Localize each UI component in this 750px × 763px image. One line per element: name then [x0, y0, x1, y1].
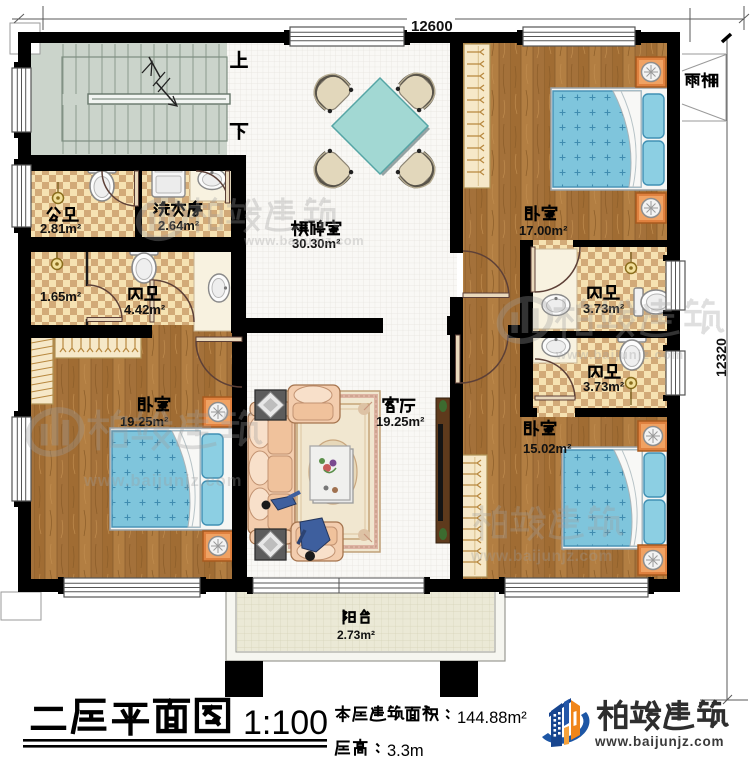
svg-text:15.02m²: 15.02m²	[523, 441, 572, 456]
svg-text:4.42m²: 4.42m²	[124, 302, 166, 317]
svg-text:144.88m²: 144.88m²	[457, 709, 527, 727]
svg-text:19.25m²: 19.25m²	[376, 414, 425, 429]
svg-text:1.65m²: 1.65m²	[40, 289, 82, 304]
svg-text:12320: 12320	[713, 338, 729, 377]
svg-text:2.73m²: 2.73m²	[337, 628, 375, 642]
svg-text:www.baijunjz.com: www.baijunjz.com	[555, 347, 684, 362]
svg-text:www.baijunjz.com: www.baijunjz.com	[470, 548, 613, 565]
svg-text:2.81m²: 2.81m²	[40, 221, 82, 236]
svg-text:3.3m: 3.3m	[387, 742, 424, 760]
svg-text:1:100: 1:100	[243, 704, 328, 742]
svg-text:3.73m²: 3.73m²	[583, 379, 625, 394]
svg-text:www.baijunjz.com: www.baijunjz.com	[83, 472, 242, 490]
svg-text:17.00m²: 17.00m²	[519, 223, 568, 238]
svg-text:12600: 12600	[411, 18, 453, 35]
svg-text:www.baijunjz.com: www.baijunjz.com	[594, 734, 724, 749]
svg-text:www.baijunjz.com: www.baijunjz.com	[243, 233, 364, 248]
